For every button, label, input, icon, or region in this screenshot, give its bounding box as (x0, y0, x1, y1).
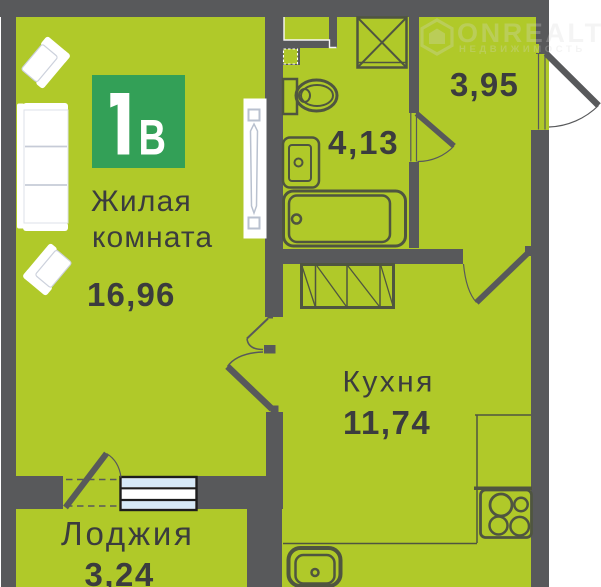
svg-text:В: В (139, 110, 167, 166)
svg-text:3,24: 3,24 (85, 556, 155, 587)
svg-text:16,96: 16,96 (87, 276, 176, 313)
svg-text:комната: комната (92, 221, 213, 254)
svg-text:Лоджия: Лоджия (61, 515, 195, 552)
svg-text:Жилая: Жилая (91, 185, 192, 218)
svg-text:4,13: 4,13 (328, 124, 399, 161)
svg-text:НЕДВИЖИМОСТЬ: НЕДВИЖИМОСТЬ (459, 44, 586, 55)
svg-text:3,95: 3,95 (450, 66, 519, 103)
svg-text:Кухня: Кухня (343, 366, 435, 399)
svg-text:11,74: 11,74 (343, 404, 431, 441)
